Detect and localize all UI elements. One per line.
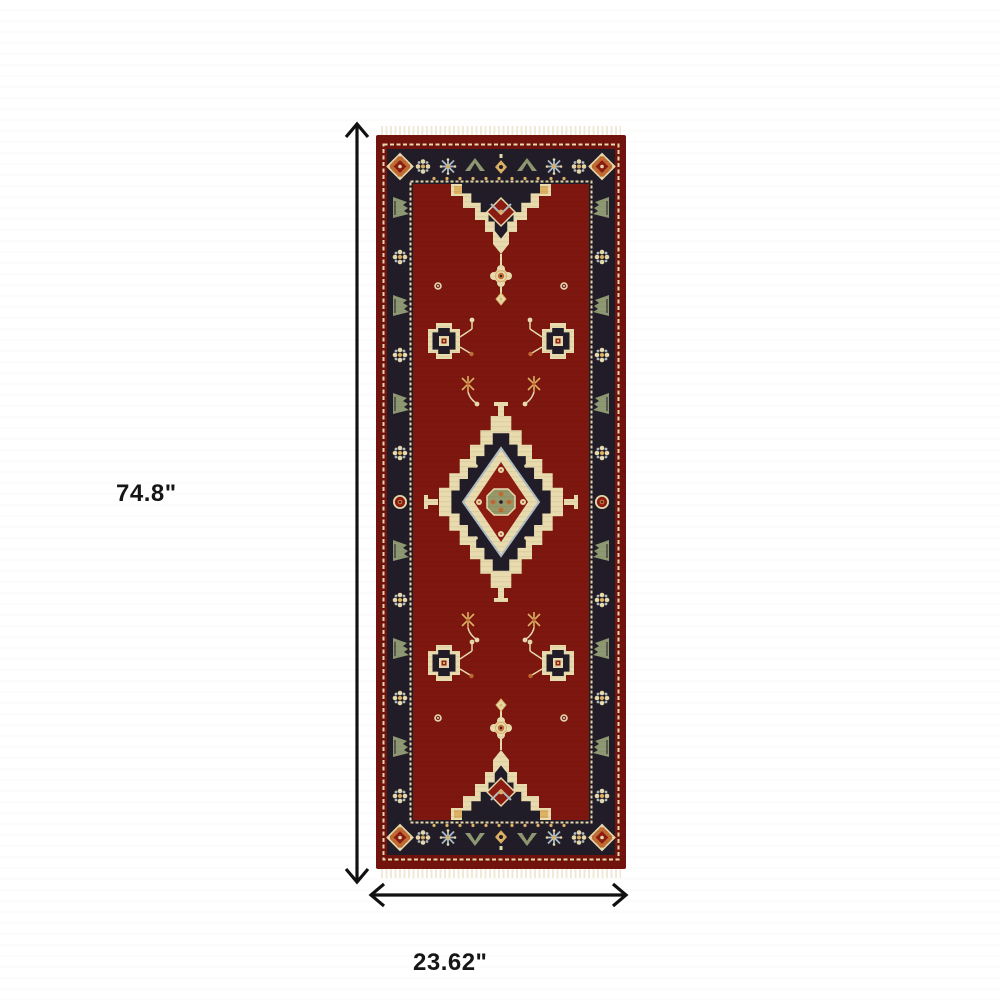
product-dimension-image: 74.8" 23.62" [0, 0, 1000, 1000]
height-dimension-label: 74.8" [116, 480, 177, 508]
horizontal-dimension-arrow-icon [371, 884, 626, 906]
vertical-dimension-arrow-icon [346, 124, 368, 882]
rug-illustration [376, 126, 626, 878]
width-dimension-label: 23.62" [413, 949, 487, 977]
rug-product-photo [376, 126, 626, 878]
rug-weave-texture [376, 135, 626, 869]
